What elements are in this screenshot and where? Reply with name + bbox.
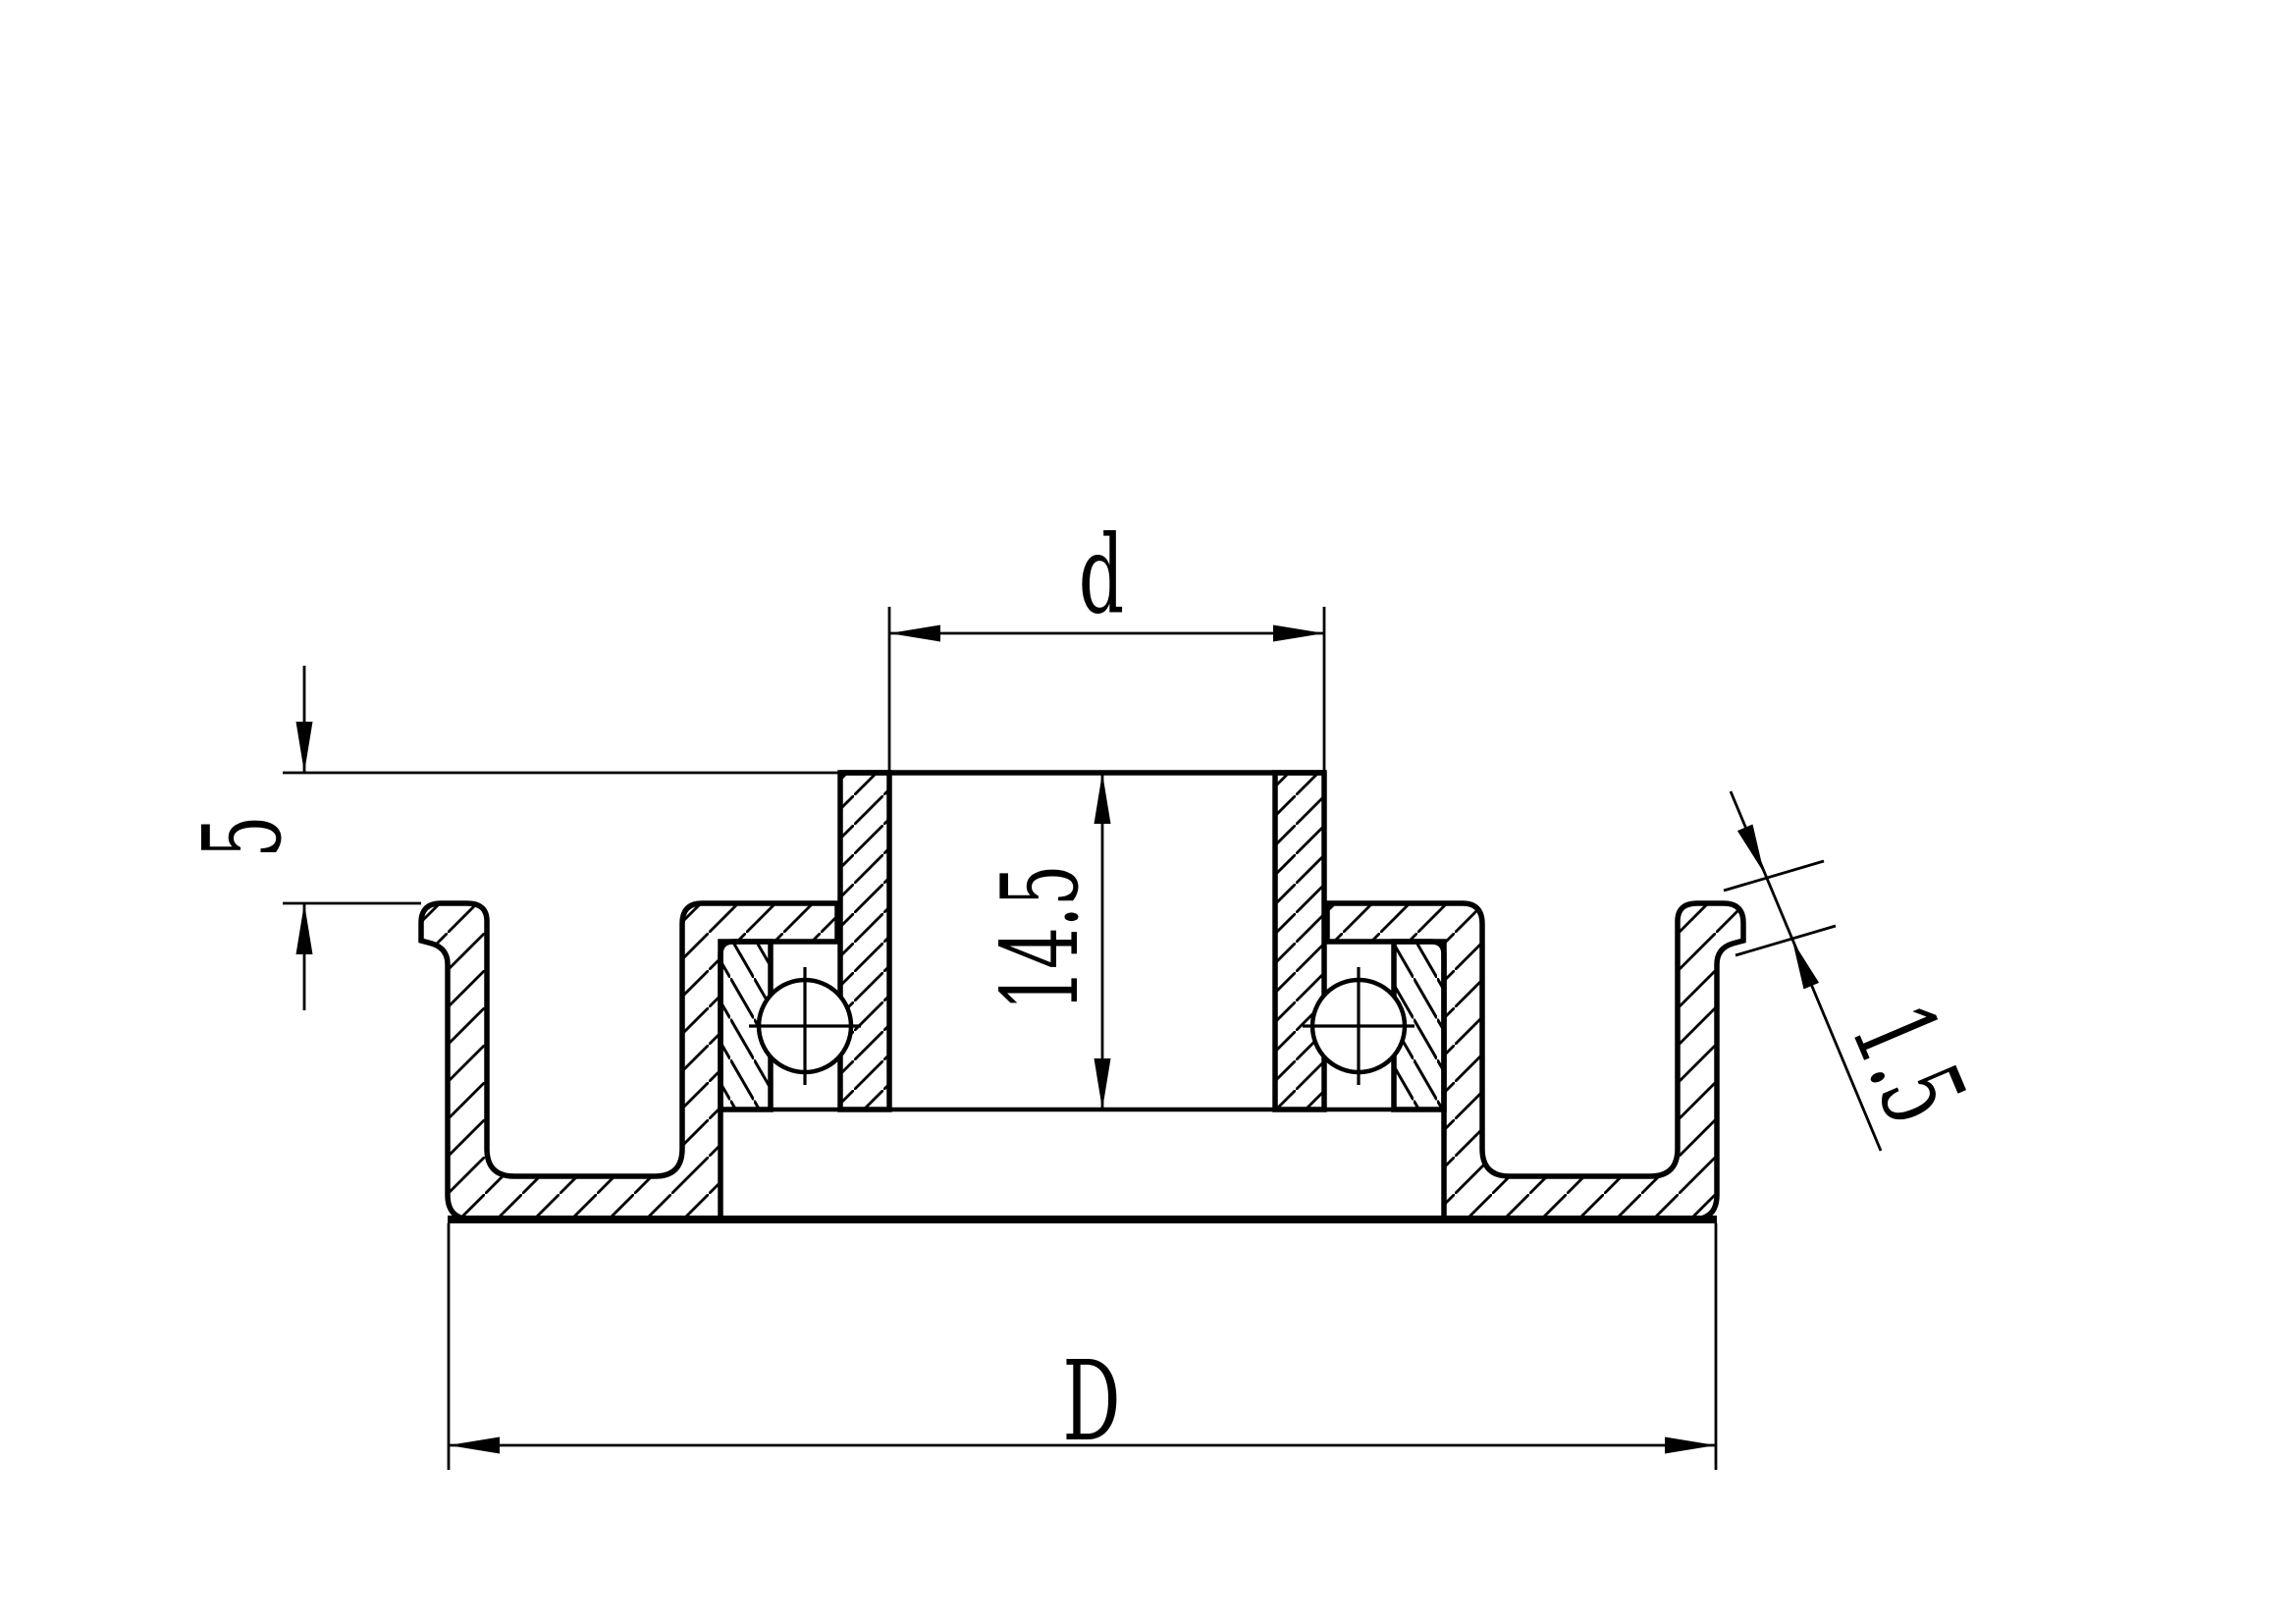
dim-14-5-arrow-bottom: [1095, 1058, 1111, 1110]
dim-5-arrow-down: [296, 722, 313, 773]
hub-sleeve-right: [1275, 773, 1324, 1110]
dimension-bore-d: d: [889, 512, 1324, 771]
dim-d-arrow-right: [1273, 625, 1324, 642]
dimension-outer-diameter-D: D: [449, 1223, 1716, 1470]
dim-14-5-label: 14.5: [980, 864, 1102, 1010]
dim-1-5-witness-lower: [1735, 926, 1836, 955]
dim-1-5-arrow-lower: [1792, 941, 1819, 989]
dim-5-arrow-up: [296, 903, 313, 954]
dim-1-5-witness-upper: [1724, 861, 1824, 891]
dim-D-arrow-right: [1665, 1437, 1716, 1454]
dim-5-label: 5: [180, 815, 306, 857]
dimension-lip-thickness-1-5: 1.5: [1724, 791, 1991, 1151]
dimension-hub-length-14-5: 14.5: [980, 773, 1110, 1110]
dim-1-5-arrow-upper: [1737, 825, 1764, 874]
dim-d-arrow-left: [889, 625, 940, 642]
dim-d-label: d: [1079, 512, 1124, 638]
dim-D-arrow-left: [449, 1437, 500, 1454]
dim-1-5-label: 1.5: [1826, 988, 1991, 1142]
dim-14-5-arrow-top: [1095, 773, 1111, 824]
hub-sleeve-left: [840, 773, 889, 1110]
dim-D-label: D: [1062, 1338, 1120, 1466]
engineering-drawing-canvas: d 5 14.5 1.5 D: [0, 0, 2296, 1624]
